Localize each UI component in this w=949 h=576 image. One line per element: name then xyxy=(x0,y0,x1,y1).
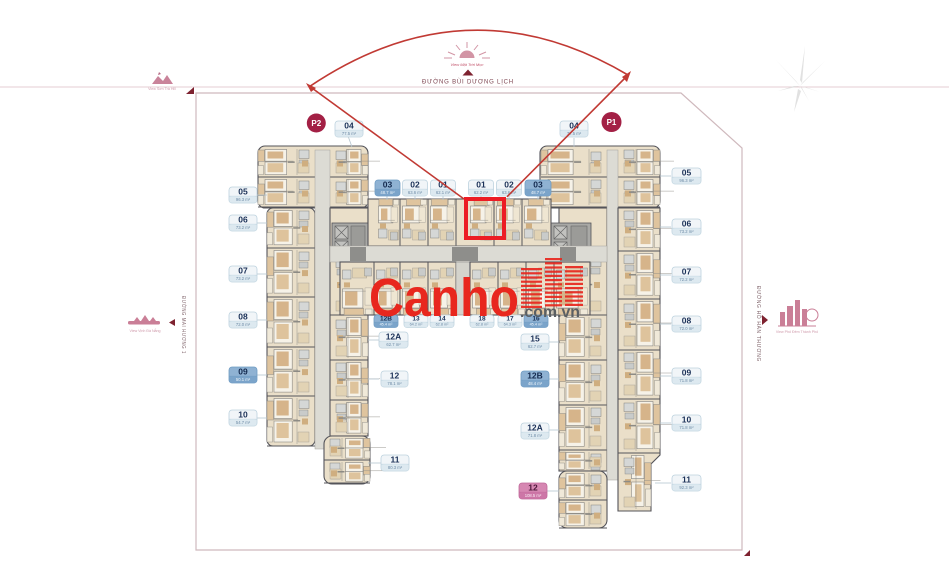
svg-text:02: 02 xyxy=(410,179,420,189)
svg-text:62.7 m²: 62.7 m² xyxy=(528,344,543,349)
svg-text:Canho: Canho xyxy=(369,268,519,328)
svg-text:71.8 m²: 71.8 m² xyxy=(528,433,543,438)
svg-text:72.0 m²: 72.0 m² xyxy=(236,322,251,327)
svg-text:12: 12 xyxy=(528,482,538,492)
svg-text:P2: P2 xyxy=(311,119,321,128)
svg-text:ĐƯỜNG BÙI DƯƠNG LỊCH: ĐƯỜNG BÙI DƯƠNG LỊCH xyxy=(422,79,514,86)
svg-text:07: 07 xyxy=(682,266,692,276)
svg-text:48.4 m²: 48.4 m² xyxy=(528,381,543,386)
svg-text:12A: 12A xyxy=(527,422,543,432)
svg-text:73.2 m²: 73.2 m² xyxy=(236,276,251,281)
svg-text:80.3 m²: 80.3 m² xyxy=(388,465,403,470)
svg-text:ĐƯỜNG MAI HƯƠNG 1: ĐƯỜNG MAI HƯƠNG 1 xyxy=(180,296,187,354)
svg-text:50.1 m²: 50.1 m² xyxy=(236,377,251,382)
svg-text:92.3 m²: 92.3 m² xyxy=(679,485,694,490)
svg-text:62.2 m²: 62.2 m² xyxy=(474,190,489,195)
svg-text:12B: 12B xyxy=(527,370,543,380)
svg-text:48.7 m²: 48.7 m² xyxy=(380,190,395,195)
svg-text:08: 08 xyxy=(238,311,248,321)
svg-text:62.7 m²: 62.7 m² xyxy=(386,342,401,347)
svg-text:11: 11 xyxy=(682,474,691,484)
svg-text:01: 01 xyxy=(476,179,486,189)
svg-text:45.4 m²: 45.4 m² xyxy=(530,323,544,327)
svg-text:ĐƯỜNG HỒ HÁN THƯƠNG: ĐƯỜNG HỒ HÁN THƯƠNG xyxy=(755,286,762,362)
svg-text:71.8 m²: 71.8 m² xyxy=(679,378,694,383)
svg-text:12A: 12A xyxy=(386,331,402,341)
svg-text:06: 06 xyxy=(238,214,248,224)
svg-text:96.3 m²: 96.3 m² xyxy=(679,178,694,183)
svg-text:71.8 m²: 71.8 m² xyxy=(679,425,694,430)
svg-text:77.5 m²: 77.5 m² xyxy=(342,131,357,136)
svg-text:11: 11 xyxy=(391,454,400,464)
svg-text:03: 03 xyxy=(533,179,543,189)
svg-text:08: 08 xyxy=(682,315,692,325)
svg-text:15: 15 xyxy=(530,333,540,343)
svg-text:09: 09 xyxy=(238,366,248,376)
svg-text:03: 03 xyxy=(383,179,393,189)
svg-text:06: 06 xyxy=(682,218,692,228)
svg-text:View Vịnh Đà Nẵng: View Vịnh Đà Nẵng xyxy=(129,328,160,333)
svg-text:48.7 m²: 48.7 m² xyxy=(531,190,546,195)
svg-text:96.3 m²: 96.3 m² xyxy=(236,197,251,202)
svg-text:62.1 m²: 62.1 m² xyxy=(436,190,451,195)
svg-text:04: 04 xyxy=(344,120,354,130)
svg-text:10: 10 xyxy=(238,409,248,419)
svg-text:10: 10 xyxy=(682,414,692,424)
svg-text:72.0 m²: 72.0 m² xyxy=(679,326,694,331)
svg-text:73.2 m²: 73.2 m² xyxy=(679,229,694,234)
svg-text:73.2 m²: 73.2 m² xyxy=(236,225,251,230)
svg-text:05: 05 xyxy=(682,167,692,177)
svg-text:72.2 m²: 72.2 m² xyxy=(679,277,694,282)
svg-text:.com.vn: .com.vn xyxy=(520,304,580,321)
svg-text:View Sơn Trà Hill: View Sơn Trà Hill xyxy=(148,87,176,91)
svg-text:63.6 m²: 63.6 m² xyxy=(408,190,423,195)
svg-text:View Mặt Trời Mọc: View Mặt Trời Mọc xyxy=(451,62,484,67)
svg-text:12: 12 xyxy=(390,370,400,380)
svg-text:09: 09 xyxy=(682,367,692,377)
svg-text:02: 02 xyxy=(504,179,514,189)
svg-text:78.1 m²: 78.1 m² xyxy=(387,381,402,386)
svg-text:108.5 m²: 108.5 m² xyxy=(525,493,542,498)
svg-text:07: 07 xyxy=(238,265,248,275)
svg-text:View Phố Đêm Thành Phố: View Phố Đêm Thành Phố xyxy=(776,330,818,334)
svg-text:54.7 m²: 54.7 m² xyxy=(236,420,251,425)
svg-text:P1: P1 xyxy=(607,118,617,127)
svg-text:05: 05 xyxy=(238,186,248,196)
